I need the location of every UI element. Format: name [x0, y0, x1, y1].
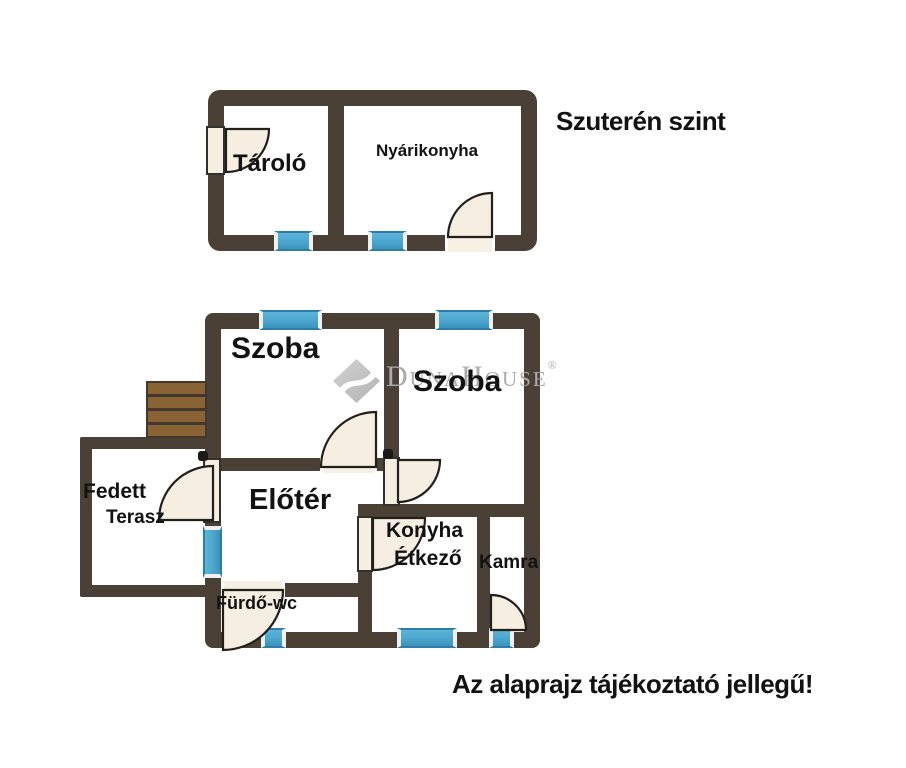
dunahouse-logo-icon [333, 359, 380, 403]
room-label-konyha: Konyha [386, 520, 463, 541]
upper-plan-title: Szuterén szint [556, 108, 725, 134]
upper-plan-divider-wall [328, 104, 344, 236]
room-label-nyarikonyha: Nyárikonyha [376, 142, 478, 159]
szoba-left-window [259, 310, 322, 330]
tarolo-door-leaf [206, 126, 225, 175]
room-label-eloter: Előtér [249, 486, 331, 515]
room-label-furdo-wc: Fürdő-wc [216, 594, 297, 612]
tarolo-window [274, 231, 313, 251]
room-label-kamra: Kamra [479, 553, 538, 572]
watermark-registered-mark: ® [548, 359, 557, 371]
nyarikonyha-window [368, 231, 407, 251]
room-label-terasz: Terasz [106, 508, 165, 527]
room-label-fedett: Fedett [83, 481, 146, 502]
terasz-door-arc [158, 465, 214, 521]
stairs [146, 381, 207, 438]
room-label-szoba-right: Szoba [413, 367, 501, 397]
szoba-right-door-hinge [383, 449, 393, 459]
konyha-door-leaf [357, 516, 373, 572]
szoba-left-bottom-wall-a [219, 458, 322, 471]
room-label-tarolo: Tároló [233, 152, 306, 176]
konyha-window [397, 628, 457, 648]
nyarikonyha-door-arc [447, 192, 493, 238]
room-label-etkezo: Étkező [394, 548, 462, 569]
terasz-window [203, 526, 222, 578]
kamra-door-arc [490, 594, 527, 631]
room-label-szoba-left: Szoba [231, 334, 319, 364]
footer-note: Az alaprajz tájékoztató jellegű! [452, 671, 813, 697]
floorplan-canvas: Tároló Nyárikonyha Szuterén szint [0, 0, 906, 768]
terasz-door-hinge [198, 451, 208, 461]
szoba-right-window [435, 310, 493, 330]
szoba-left-door-arc [320, 411, 377, 468]
szoba-right-door-arc [397, 459, 441, 503]
